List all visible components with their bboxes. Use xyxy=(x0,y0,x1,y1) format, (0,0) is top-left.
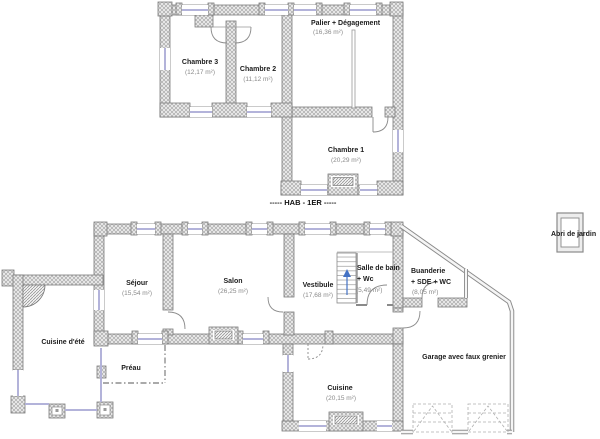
room-area-cuisine: (20,15 m²) xyxy=(326,395,356,402)
room-label-salle-de-bain: Salle de bain xyxy=(357,265,400,272)
room-label-vestibule: Vestibule xyxy=(303,282,334,289)
corner-fireplace xyxy=(23,285,45,307)
floor-plan-canvas: Chambre 3 (12,17 m²) Chambre 2 (11,12 m²… xyxy=(0,0,600,439)
room-area-chambre3: (12,17 m²) xyxy=(185,69,215,76)
preau-boundary xyxy=(103,345,165,383)
room-area-buanderie: (8,05 m²) xyxy=(412,289,438,296)
room-label-buanderie-2: + SDE + WC xyxy=(411,279,451,286)
garage-walls xyxy=(401,226,512,432)
room-label-salon: Salon xyxy=(223,278,242,285)
room-area-palier: (16,36 m²) xyxy=(313,29,343,36)
room-area-sejour: (15,54 m²) xyxy=(122,290,152,297)
room-area-salle-de-bain: (5,49 m²) xyxy=(356,287,382,294)
first-floor-title: ----- HAB - 1ER ----- xyxy=(270,198,337,207)
garage-door-left xyxy=(413,404,452,432)
chimney-salon xyxy=(213,330,234,340)
room-label-salle-de-bain-2: + Wc xyxy=(357,276,374,283)
chimney-chambre1 xyxy=(331,176,355,187)
room-label-garage: Garage avec faux grenier xyxy=(422,354,506,361)
room-label-cuisine-ete: Cuisine d'été xyxy=(41,339,84,346)
room-area-chambre2: (11,12 m²) xyxy=(243,76,273,83)
room-label-palier: Palier + Dégagement xyxy=(311,20,381,27)
garage-door-right xyxy=(468,404,508,432)
room-label-buanderie: Buanderie xyxy=(411,268,445,275)
floor-plan-drawing: Chambre 3 (12,17 m²) Chambre 2 (11,12 m²… xyxy=(0,0,600,439)
room-area-vestibule: (17,68 m²) xyxy=(303,292,333,299)
first-floor-windows xyxy=(160,5,403,195)
room-area-salon: (26,25 m²) xyxy=(218,288,248,295)
room-label-abri: Abri de jardin xyxy=(551,231,596,238)
palier-partition xyxy=(352,30,355,108)
first-floor-walls xyxy=(158,2,403,195)
room-label-chambre1: Chambre 1 xyxy=(328,147,364,154)
room-label-chambre3: Chambre 3 xyxy=(182,59,218,66)
room-label-sejour: Séjour xyxy=(126,280,148,287)
ground-floor-walls xyxy=(2,222,467,431)
first-floor-plan: Chambre 3 (12,17 m²) Chambre 2 (11,12 m²… xyxy=(158,2,403,207)
chimney-cuisine xyxy=(333,415,359,425)
room-label-preau: Préau xyxy=(121,365,140,372)
room-label-cuisine: Cuisine xyxy=(327,385,352,392)
garden-shed: Abri de jardin xyxy=(551,213,596,252)
room-area-chambre1: (20,29 m²) xyxy=(331,157,361,164)
room-label-chambre2: Chambre 2 xyxy=(240,66,276,73)
ground-floor-plan: Séjour (15,54 m²) Salon (26,25 m²) Vesti… xyxy=(2,222,512,432)
